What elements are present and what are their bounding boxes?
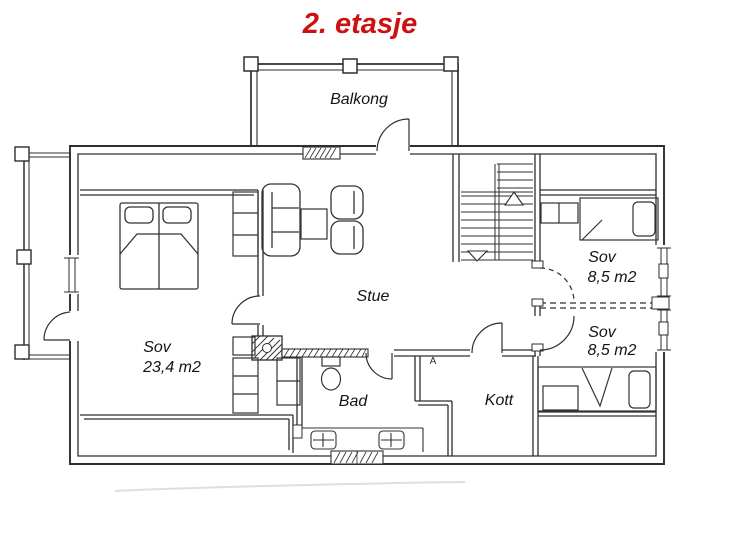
window-north-stue: [303, 147, 340, 159]
balcony-post: [15, 345, 29, 359]
balcony-post: [444, 57, 458, 71]
balcony-post: [15, 147, 29, 161]
hatched-wall: [282, 349, 368, 357]
balcony-post: [343, 59, 357, 73]
room-area-sov-ne: 8,5 m2: [588, 269, 637, 286]
room-area-sov-master: 23,4 m2: [142, 359, 201, 376]
room-label-sov-master: Sov: [143, 339, 172, 356]
room-area-sov-se: 8,5 m2: [588, 342, 637, 359]
page-title: 2. etasje: [302, 8, 417, 40]
chimney: [252, 336, 282, 360]
balcony-post: [244, 57, 258, 71]
room-label-bad: Bad: [339, 393, 369, 410]
window-south-bad: [331, 451, 383, 464]
room-label-kott: Kott: [485, 392, 514, 409]
room-label-sov-se: Sov: [588, 324, 617, 341]
room-label-balkong: Balkong: [330, 91, 388, 108]
paper-background: [0, 0, 752, 550]
floor-plan-page: 2. etasje: [0, 0, 752, 550]
vent-marker: A: [430, 356, 437, 367]
room-label-stue: Stue: [357, 288, 390, 305]
balcony-post: [17, 250, 31, 264]
room-label-sov-ne: Sov: [588, 249, 617, 266]
floor-plan-drawing: 2. etasje: [0, 0, 752, 550]
